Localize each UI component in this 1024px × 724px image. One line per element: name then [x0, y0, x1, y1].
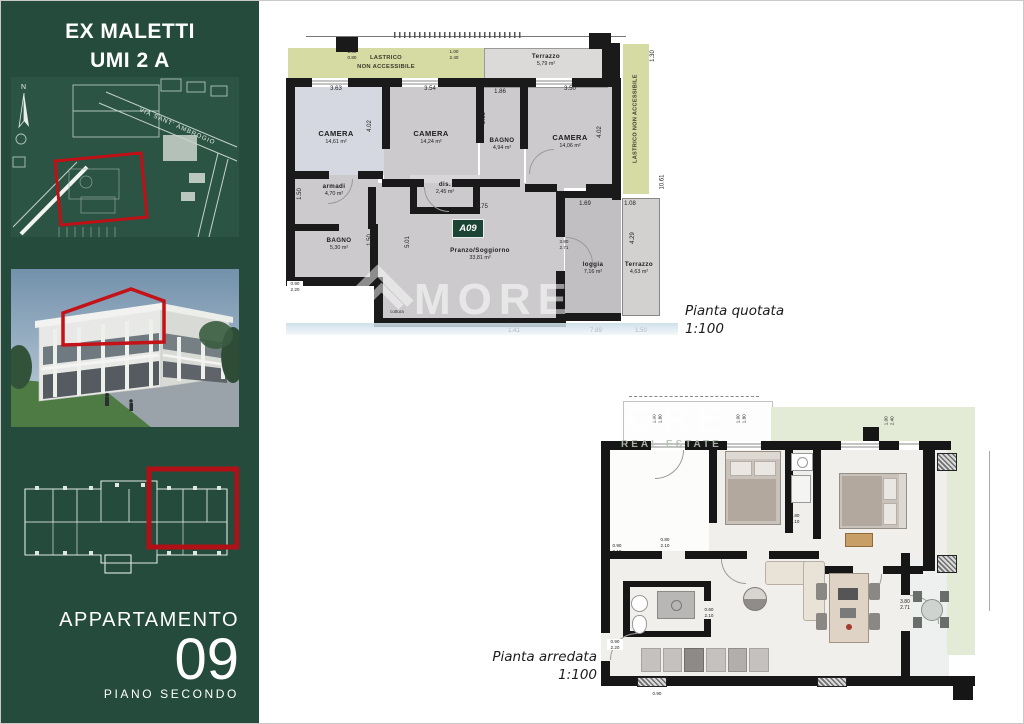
dining-table — [829, 573, 869, 643]
bed-headboard — [899, 474, 906, 528]
apartment-block: APPARTAMENTO 09 PIANO SECONDO — [11, 609, 239, 701]
render-tree-back — [199, 321, 233, 349]
dim-cam1-w: 3.63 — [316, 86, 356, 92]
watermark-band — [286, 323, 678, 335]
dining-chair — [816, 583, 827, 600]
bed-pillow — [883, 503, 897, 525]
dim-bagno2-h: 1.50 — [367, 234, 373, 246]
round-chair — [743, 587, 767, 611]
kitchen-hob — [684, 648, 704, 672]
project-title: EX MALETTI UMI 2 A — [1, 17, 259, 76]
bed-pillow — [883, 478, 897, 500]
dim-cam3-w: 3.50 — [548, 86, 592, 92]
dim-window-pair-2: 1.00 2.40 — [446, 49, 462, 60]
key-plan — [11, 459, 239, 591]
caption-quotata: Pianta quotata 1:100 — [685, 303, 784, 338]
bed-blanket — [728, 479, 776, 521]
toilet — [632, 615, 647, 634]
dim-pair: 0.90 2.20 — [607, 639, 623, 650]
kitchen-counter — [641, 648, 769, 672]
dim-left-pair: 0.90 2.20 — [287, 281, 303, 292]
bed-pillow — [754, 461, 776, 476]
shower — [657, 591, 695, 619]
key-plan-drawing — [11, 459, 239, 591]
bed-2 — [839, 473, 907, 529]
hatch-pier — [817, 677, 847, 687]
room-label-camera-2: CAMERA 14,24 m² — [388, 129, 474, 145]
kitchen-module — [663, 648, 683, 672]
map-site-detail — [59, 169, 119, 237]
bed-1 — [725, 451, 781, 525]
key-plan-outline — [25, 481, 227, 573]
dim-living-h: 5.01 — [405, 236, 411, 248]
shower-drain — [671, 600, 682, 611]
caption-quotata-title: Pianta quotata — [685, 303, 784, 321]
page-canvas: EX MALETTI UMI 2 A — [0, 0, 1024, 724]
svg-text:N: N — [21, 84, 26, 91]
dim-bottom: 0.90 — [645, 691, 669, 696]
dim-armadi-h: 1.50 — [297, 188, 303, 200]
dim-right-top: 1.30 — [650, 50, 656, 62]
building-render-drawing — [11, 269, 239, 427]
apartment-number: 09 — [11, 632, 239, 687]
kitchen-module — [641, 648, 661, 672]
key-plan-highlight-red-rect — [149, 469, 237, 547]
dim-bagno1-h: 2.65 — [481, 112, 487, 124]
bed-pillow — [730, 461, 752, 476]
bed-headboard — [726, 452, 780, 459]
room-label-loggia: loggia 7,16 m² — [570, 261, 616, 275]
kitchen-sink — [728, 648, 748, 672]
dim-pair: 0.60 2.10 — [701, 607, 717, 618]
sink-top — [791, 475, 811, 503]
caption-quotata-scale: 1:100 — [685, 321, 784, 339]
site-map-drawing: N VIA SANT' AMBROGIO — [11, 77, 239, 237]
dining-chair — [869, 613, 880, 630]
caption-arredata-title: Pianta arredata — [471, 649, 597, 667]
table-item — [846, 624, 852, 630]
dim-right-total: 10.61 — [660, 174, 666, 189]
sidebar: EX MALETTI UMI 2 A — [1, 1, 259, 724]
plan-quotata: LASTRICO NON ACCESSIBILE LASTRICO NON AC… — [286, 31, 681, 349]
dim-terr2-h: 4.29 — [630, 232, 636, 244]
outdoor-chair — [940, 591, 949, 602]
room-label-bagno-1: BAGNO 4,94 m² — [480, 137, 524, 151]
room-label-terrazzo-top: Terrazzo 5,79 m² — [486, 53, 606, 67]
dining-chair — [869, 583, 880, 600]
site-map: N VIA SANT' AMBROGIO — [11, 77, 239, 237]
map-roads — [13, 92, 237, 237]
dim-pair: 1.00 1.80 — [736, 414, 747, 423]
dim-pair: 1.00 2.40 — [884, 416, 895, 425]
dim-loggia-w: 1.69 — [570, 201, 600, 207]
caption-arredata-scale: 1:100 — [471, 667, 597, 685]
room-label-living: Pranzo/Soggiorno 33,81 m² — [432, 247, 528, 261]
map-block-light — [163, 135, 197, 161]
room-label-bagno-2: BAGNO 5,30 m² — [308, 237, 370, 251]
project-title-line2: UMI 2 A — [1, 46, 259, 75]
key-plan-piers — [35, 483, 221, 555]
plan-arredata: MORE REAL ESTATE — [601, 393, 1011, 713]
table-item — [838, 588, 858, 600]
hatch-pier — [937, 453, 957, 471]
caption-arredata: Pianta arredata 1:100 — [471, 649, 597, 684]
outdoor-chair — [913, 617, 922, 628]
room-label-dis: dis. 2,45 m² — [420, 181, 470, 195]
hatch-pier — [937, 555, 957, 573]
watermark-logo-subtext: REAL ESTATE — [621, 439, 722, 450]
hatch-pier — [637, 677, 667, 687]
room-label-armadi: armadi 4,70 m² — [302, 183, 366, 197]
outdoor-chair — [940, 617, 949, 628]
building-render — [11, 269, 239, 427]
apartment-badge: A09 — [452, 219, 484, 238]
project-title-line1: EX MALETTI — [1, 17, 259, 46]
dim-pair: 0.90 2.10 — [609, 543, 625, 554]
bench — [845, 533, 873, 547]
dim-living-w: 6.75 — [462, 204, 502, 210]
room-label-terrazzo-2: Terrazzo 4,63 m² — [618, 261, 660, 275]
dim-window-pair-1: 1.00 0.80 — [344, 49, 360, 60]
north-arrow-icon: N — [19, 84, 29, 127]
dim-door-pair: 3.80 2.71 — [554, 239, 574, 250]
dim-cam2-w: 3.54 — [408, 86, 452, 92]
table-item — [840, 608, 856, 618]
dim-pair: 0.80 2.10 — [657, 537, 673, 548]
washer — [791, 453, 813, 471]
room-label-camera-1: CAMERA 14,61 m² — [296, 129, 376, 145]
bed-blanket — [842, 476, 882, 526]
kitchen-module — [749, 648, 769, 672]
washer-door — [797, 457, 808, 468]
apartment-floor-label: PIANO SECONDO — [11, 687, 239, 701]
dim-pair: 0.80 2.10 — [787, 513, 803, 524]
dim-terr2-w: 1.08 — [616, 201, 644, 207]
sink-round — [631, 595, 648, 612]
dim-cam1-h: 4.02 — [367, 120, 373, 132]
kitchen-module — [706, 648, 726, 672]
dim-cam3-h: 4.02 — [597, 126, 603, 138]
dim-pair: 3.80 2.71 — [895, 599, 915, 612]
dim-bagno1-w: 1.86 — [480, 89, 520, 95]
watermark-logo-text: MORE — [414, 275, 574, 325]
dining-chair — [816, 613, 827, 630]
watermark-logo-text: MORE — [601, 399, 729, 442]
